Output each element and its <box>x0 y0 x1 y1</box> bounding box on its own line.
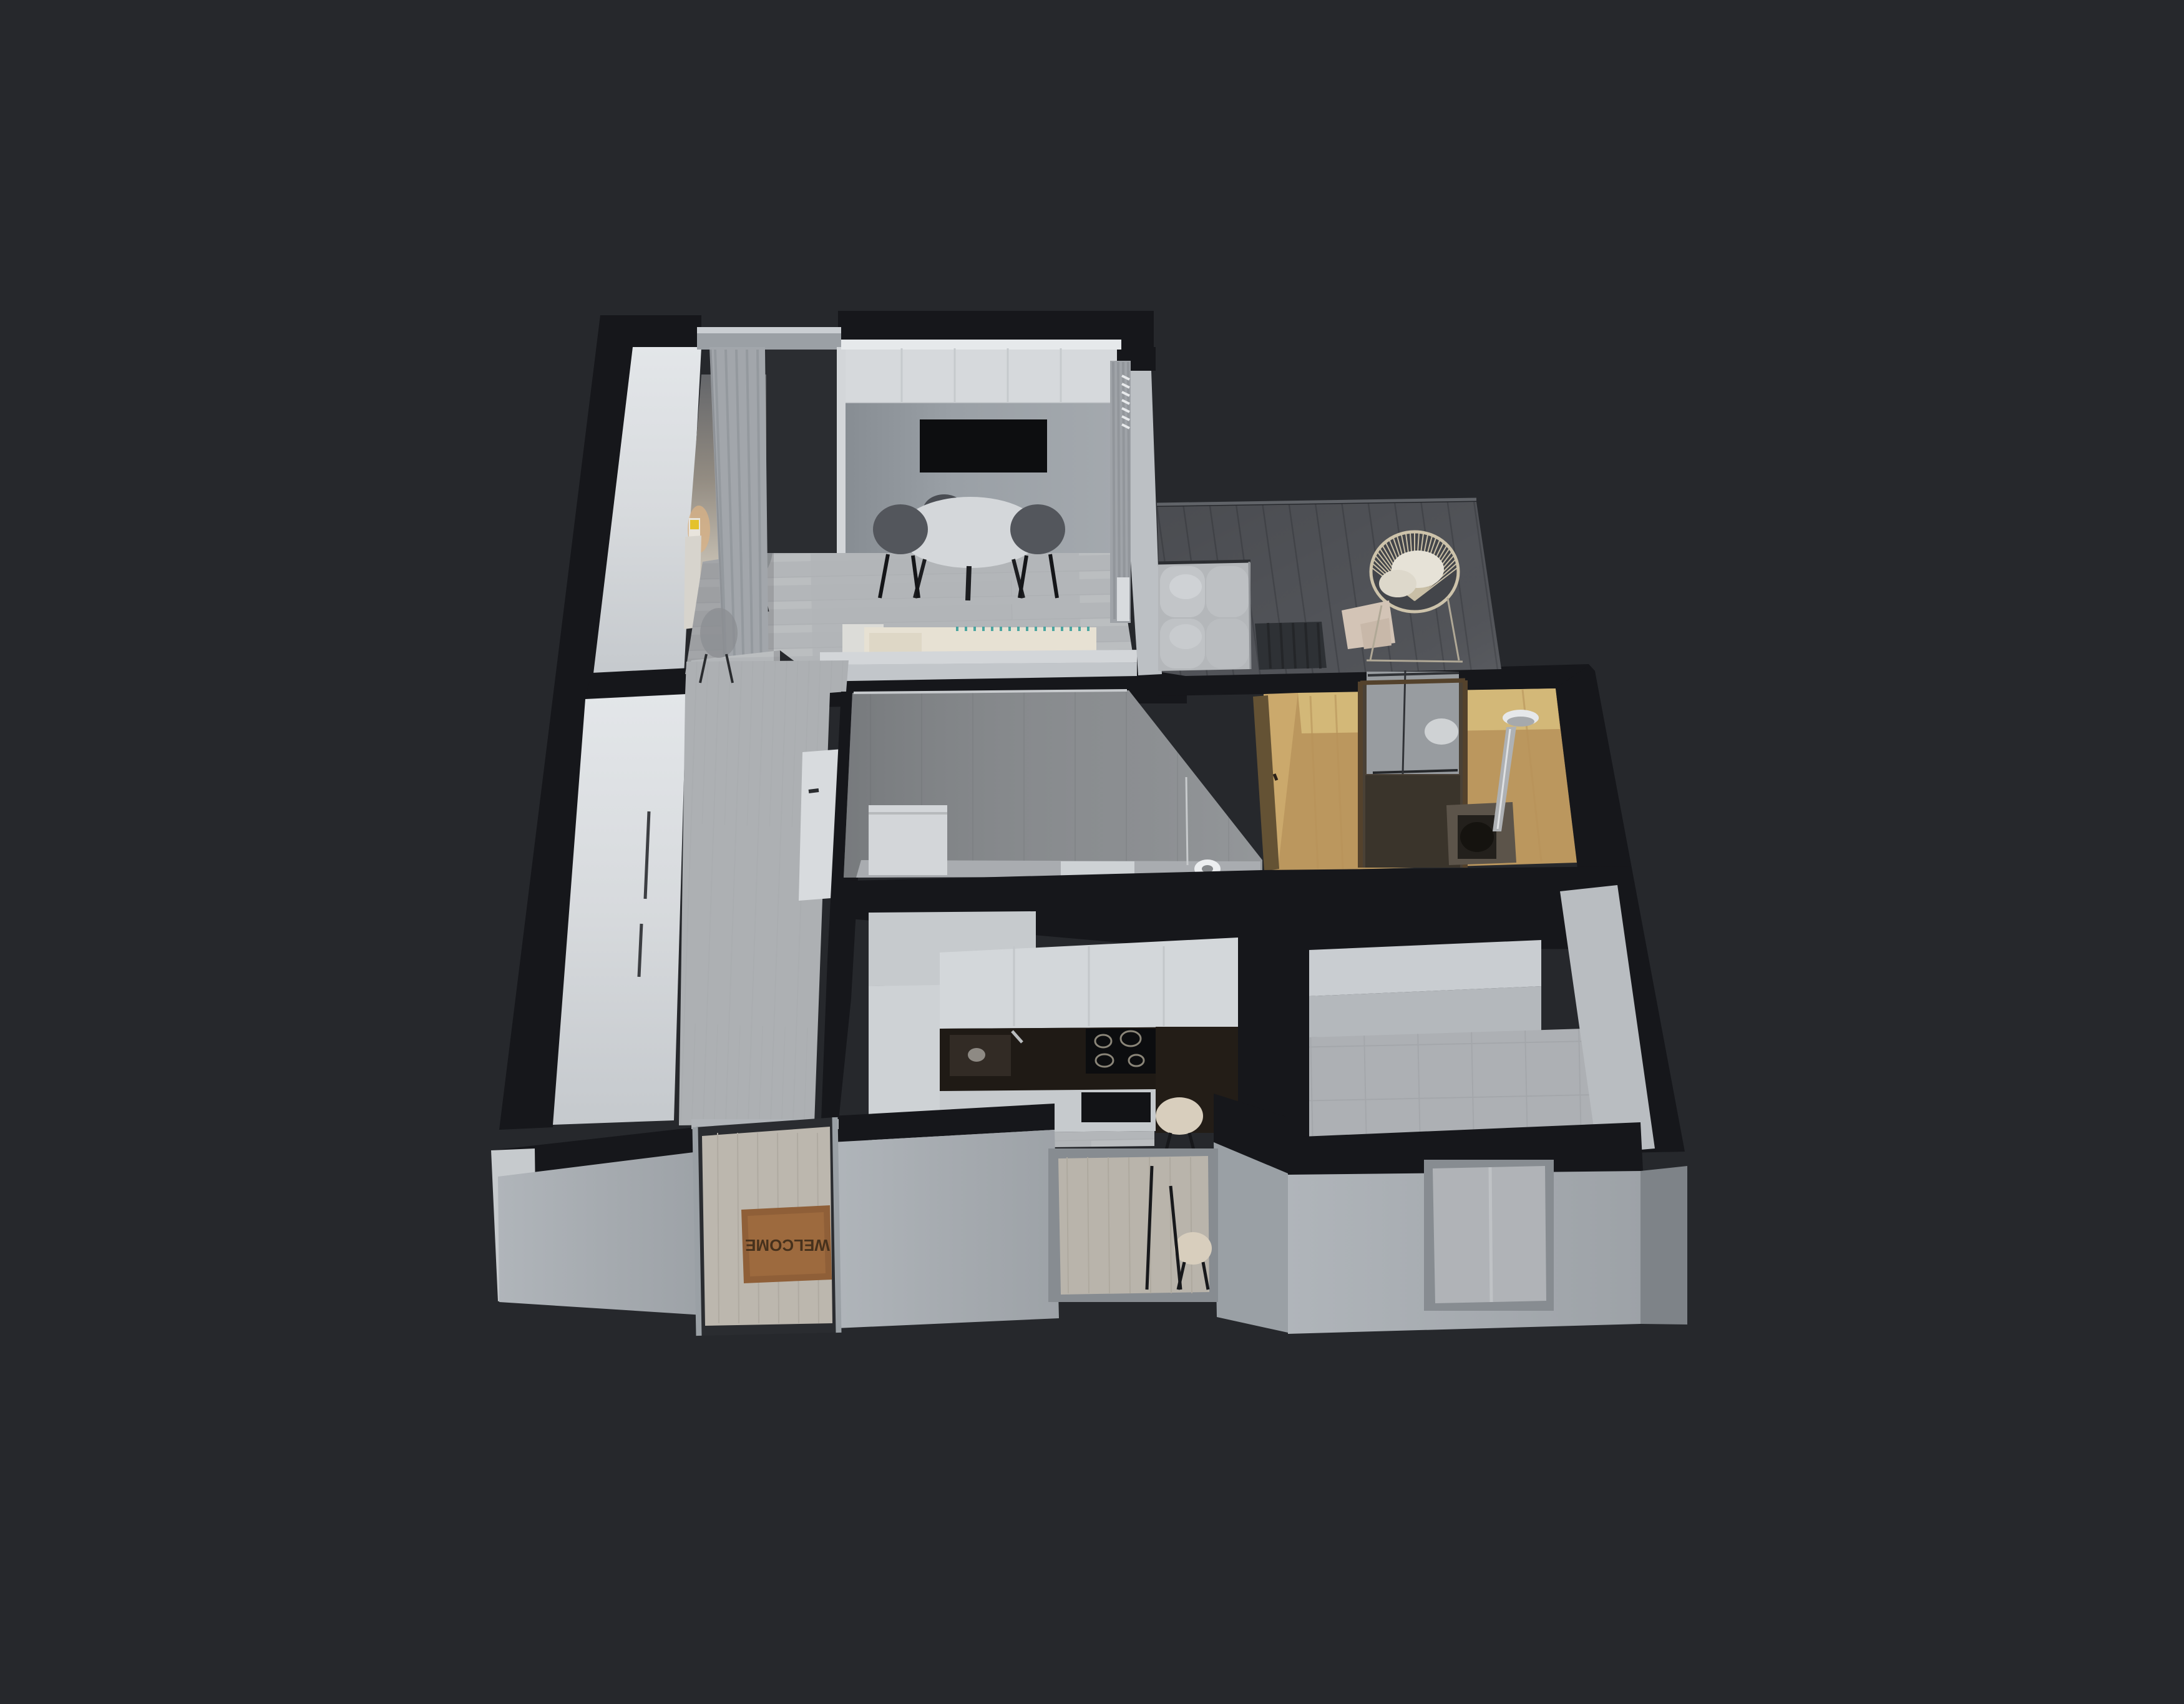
svg-text:WELCOME: WELCOME <box>745 1236 830 1255</box>
